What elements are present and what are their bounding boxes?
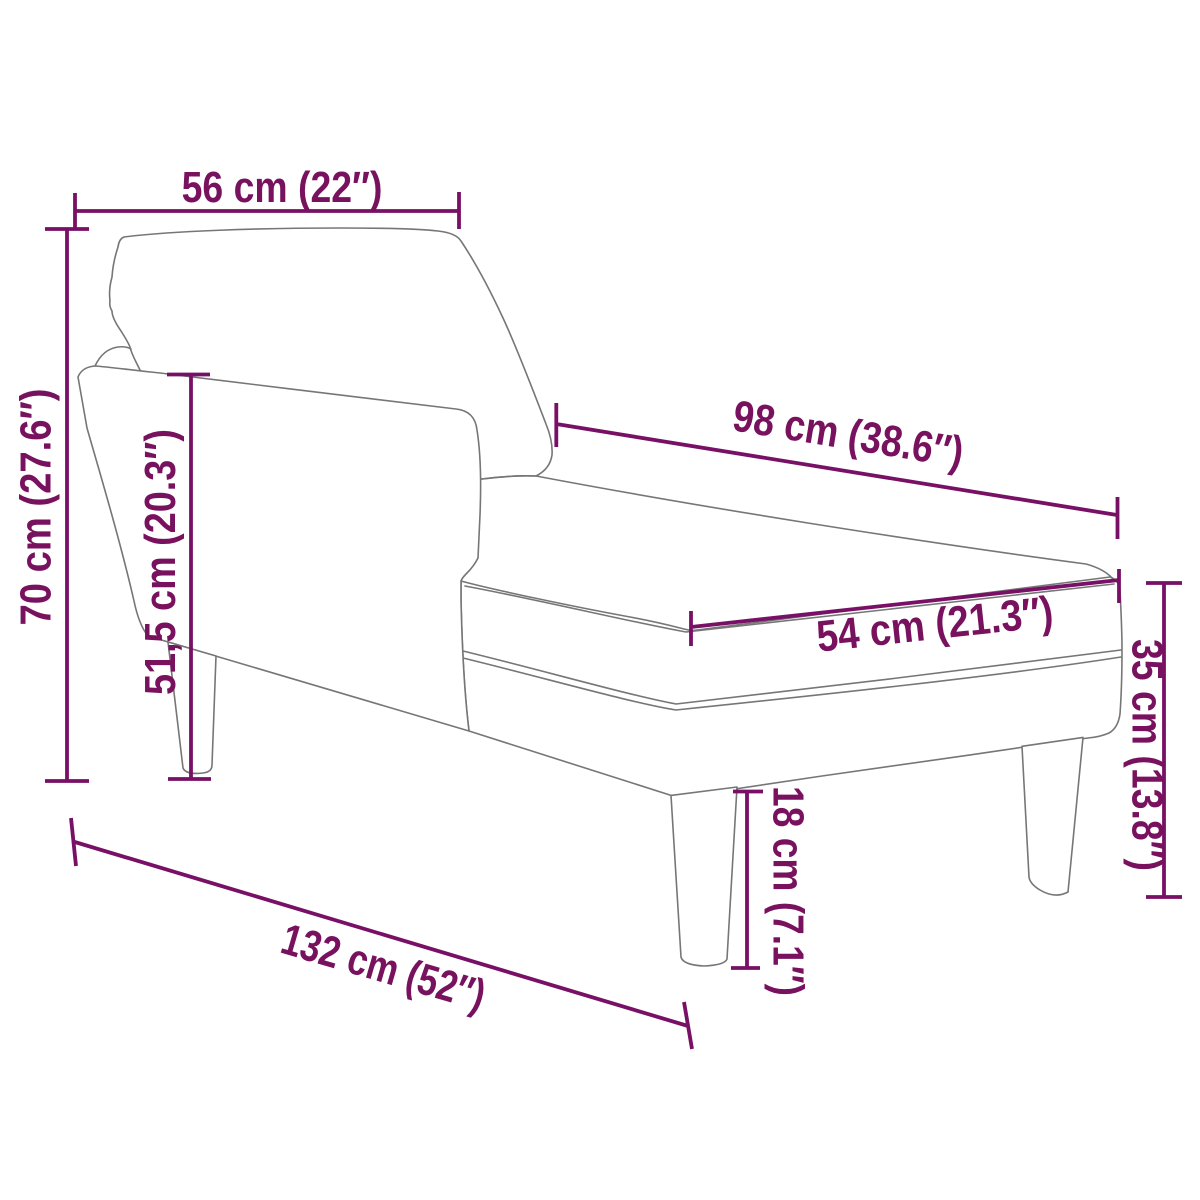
svg-text:35 cm (13.8″): 35 cm (13.8″) (1123, 639, 1173, 871)
svg-text:70 cm (27.6″): 70 cm (27.6″) (11, 389, 60, 626)
svg-text:56 cm (22″): 56 cm (22″) (182, 162, 383, 212)
svg-text:18 cm (7.1″): 18 cm (7.1″) (764, 786, 814, 996)
svg-text:51,5 cm (20.3″): 51,5 cm (20.3″) (135, 429, 184, 695)
